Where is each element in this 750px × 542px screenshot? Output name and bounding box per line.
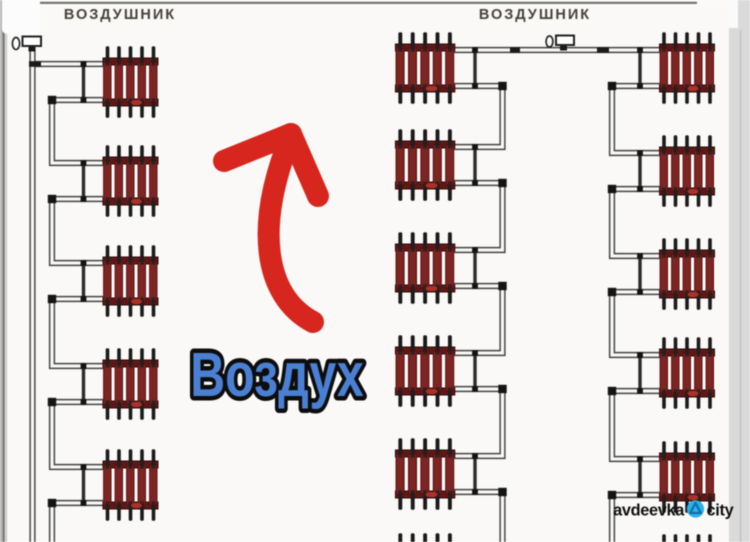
svg-text:ВОЗДУШНИК: ВОЗДУШНИК (479, 7, 591, 23)
svg-text:city: city (707, 502, 734, 520)
svg-text:Воздух: Воздух (190, 340, 364, 409)
svg-text:avdeevka: avdeevka (613, 502, 685, 520)
svg-text:ВОЗДУШНИК: ВОЗДУШНИК (64, 7, 176, 23)
